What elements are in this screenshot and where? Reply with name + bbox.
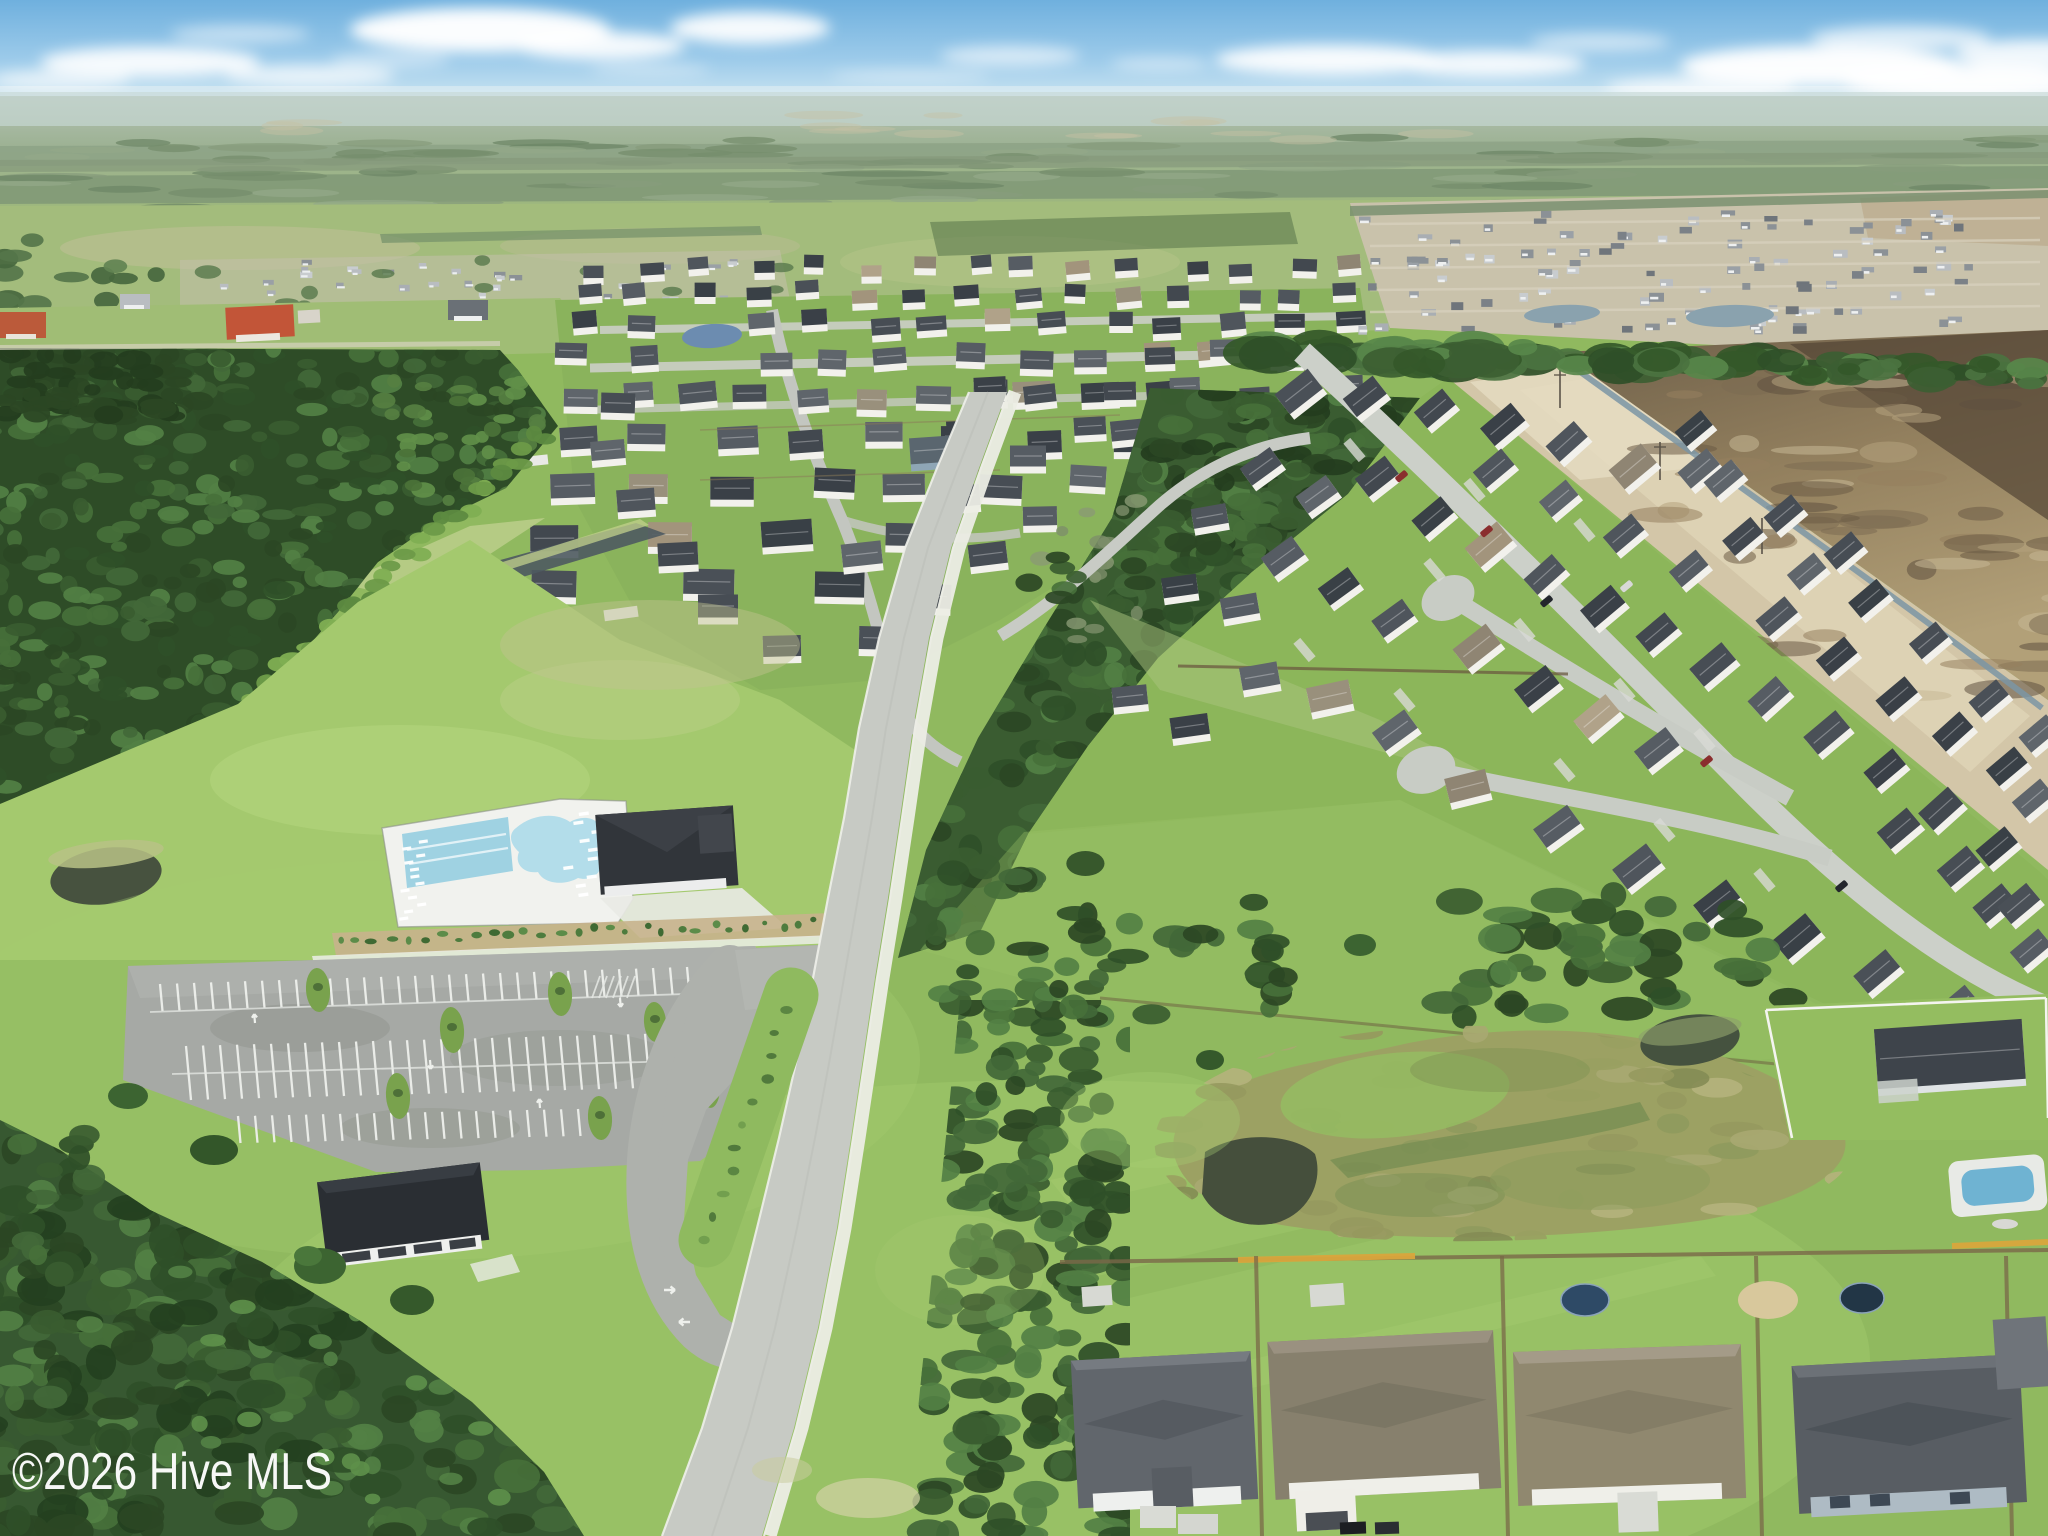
svg-text:©2026 Hive MLS: ©2026 Hive MLS	[12, 1443, 332, 1501]
